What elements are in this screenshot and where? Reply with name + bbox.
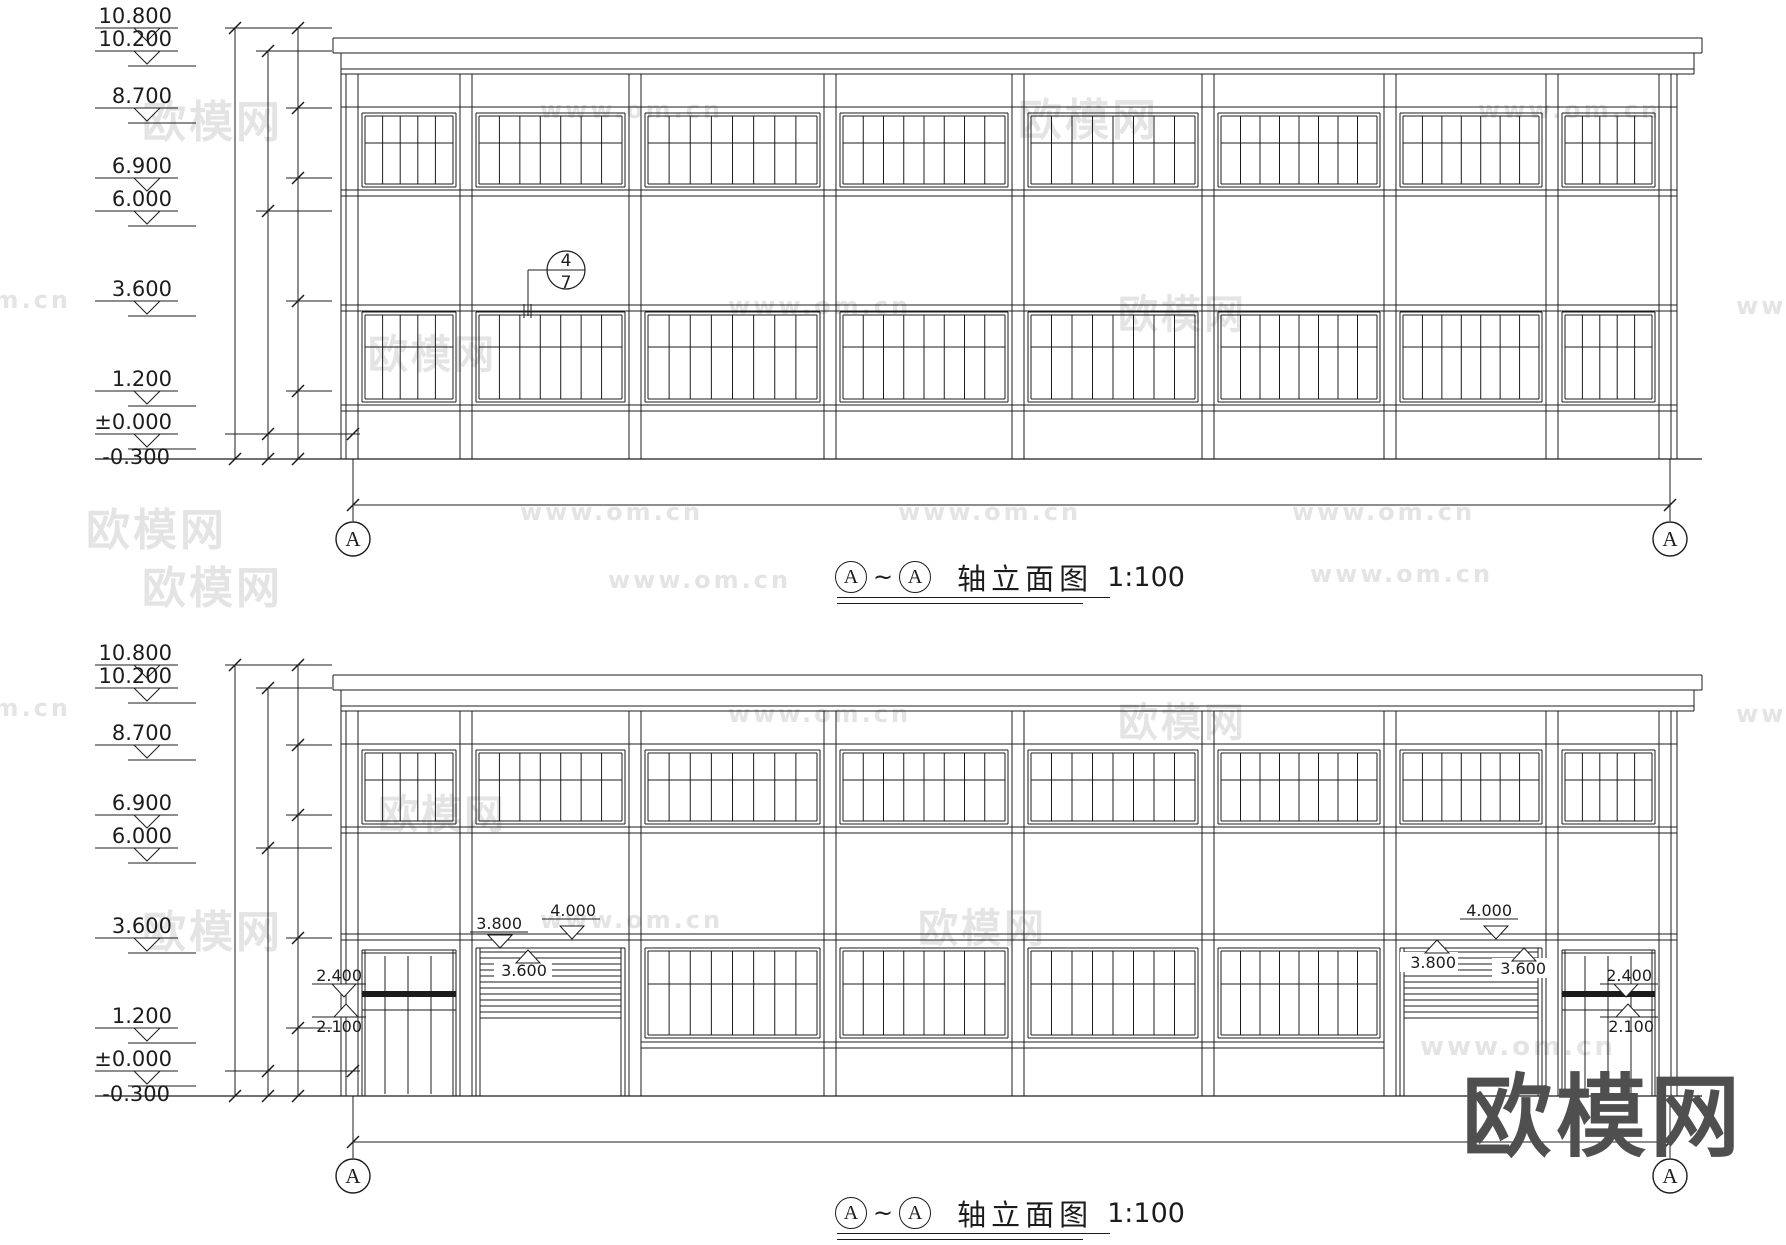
cad-canvas: 欧模网www.om.cn欧模网www.om.cnom.cn欧模网www.om.c… <box>0 0 1786 1245</box>
axis-bubble: A <box>835 561 867 593</box>
elevation-title-1: A~A轴立面图1:100 <box>835 556 1185 608</box>
svg-text:1.200: 1.200 <box>112 1004 172 1028</box>
svg-text:±0.000: ±0.000 <box>94 410 172 434</box>
tilde-separator: ~ <box>873 563 893 591</box>
svg-text:10.200: 10.200 <box>99 27 172 51</box>
title-underline <box>837 597 1110 598</box>
axis-bubble: A <box>899 561 931 593</box>
svg-text:6.000: 6.000 <box>112 824 172 848</box>
elevation-1: 10.80010.2008.7006.9006.0003.6001.200±0.… <box>94 4 1702 556</box>
title-underline <box>837 603 1083 604</box>
svg-text:10.800: 10.800 <box>99 4 172 28</box>
svg-text:4: 4 <box>561 251 572 271</box>
svg-text:3.600: 3.600 <box>112 277 172 301</box>
svg-text:±0.000: ±0.000 <box>94 1047 172 1071</box>
drawing-scale: 1:100 <box>1107 1198 1185 1229</box>
svg-text:A: A <box>345 527 361 551</box>
drawing-title: 轴立面图 <box>957 1198 1093 1232</box>
svg-text:7: 7 <box>561 273 572 293</box>
svg-text:3.600: 3.600 <box>1500 959 1546 978</box>
title-underline <box>837 1239 1083 1240</box>
drawing-scale: 1:100 <box>1107 562 1185 593</box>
svg-text:2.400: 2.400 <box>1606 966 1652 985</box>
svg-text:2.100: 2.100 <box>316 1017 362 1036</box>
svg-text:2.100: 2.100 <box>1608 1017 1654 1036</box>
elevation-2: 10.80010.2008.7006.9006.0003.6001.200±0.… <box>94 641 1702 1193</box>
svg-text:8.700: 8.700 <box>112 84 172 108</box>
svg-text:A: A <box>1662 1164 1678 1188</box>
svg-text:3.800: 3.800 <box>1410 953 1456 972</box>
svg-text:10.200: 10.200 <box>99 664 172 688</box>
elevation-title-2: A~A轴立面图1:100 <box>835 1192 1185 1244</box>
svg-text:4.000: 4.000 <box>1466 901 1512 920</box>
title-underline <box>837 1233 1110 1234</box>
drawing-title: 轴立面图 <box>957 562 1093 596</box>
svg-text:1.200: 1.200 <box>112 367 172 391</box>
axis-bubble: A <box>899 1197 931 1229</box>
svg-text:2.400: 2.400 <box>316 966 362 985</box>
svg-text:6.000: 6.000 <box>112 187 172 211</box>
svg-text:3.600: 3.600 <box>112 914 172 938</box>
svg-text:-0.300: -0.300 <box>102 1082 170 1106</box>
svg-text:A: A <box>1662 527 1678 551</box>
svg-text:-0.300: -0.300 <box>102 445 170 469</box>
elevation-drawing: 10.80010.2008.7006.9006.0003.6001.200±0.… <box>0 0 1786 1245</box>
tilde-separator: ~ <box>873 1199 893 1227</box>
svg-text:4.000: 4.000 <box>550 901 596 920</box>
svg-text:10.800: 10.800 <box>99 641 172 665</box>
svg-text:3.800: 3.800 <box>476 914 522 933</box>
axis-bubble: A <box>835 1197 867 1229</box>
svg-text:3.600: 3.600 <box>501 961 547 980</box>
svg-text:A: A <box>345 1164 361 1188</box>
svg-text:8.700: 8.700 <box>112 721 172 745</box>
svg-text:6.900: 6.900 <box>112 791 172 815</box>
svg-text:6.900: 6.900 <box>112 154 172 178</box>
